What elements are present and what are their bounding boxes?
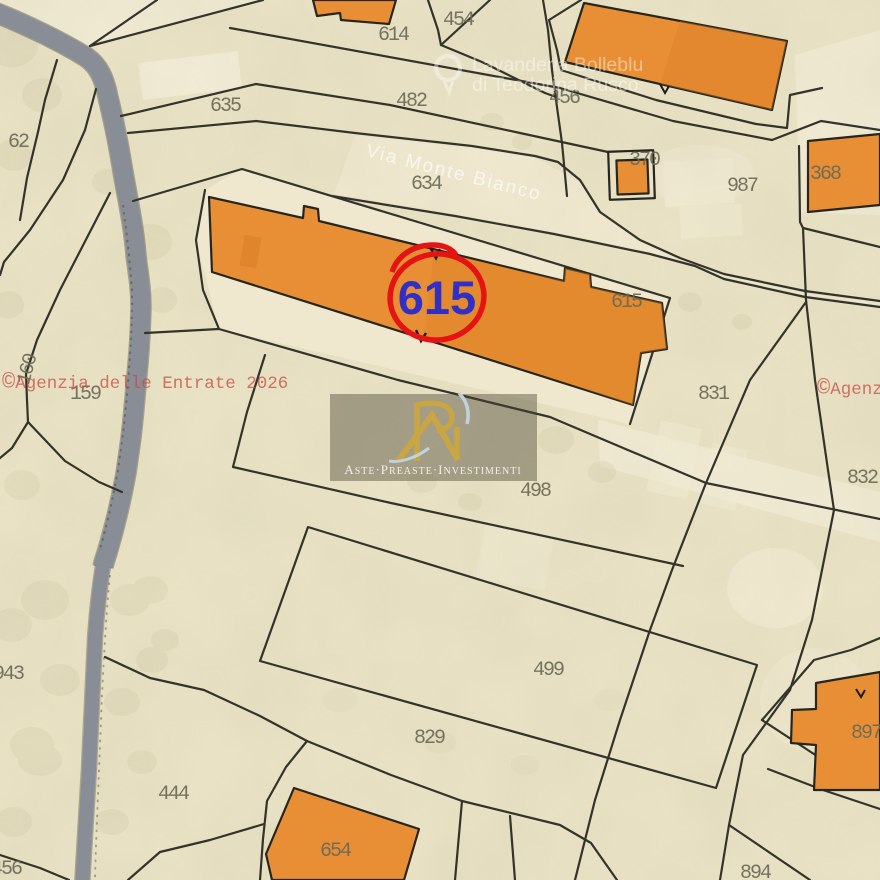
svg-text:614: 614: [378, 24, 409, 47]
svg-text:482: 482: [396, 90, 427, 113]
svg-text:943: 943: [0, 663, 24, 686]
svg-text:62: 62: [8, 131, 29, 154]
svg-text:444: 444: [158, 783, 189, 806]
svg-text:454: 454: [443, 9, 474, 32]
svg-text:368: 368: [810, 163, 841, 186]
svg-text:654: 654: [320, 840, 351, 863]
svg-text:894: 894: [740, 862, 771, 880]
svg-text:©Agenzia delle Entrate 2026: ©Agenzia delle Entrate 2026: [817, 376, 880, 401]
svg-text:897: 897: [851, 722, 880, 745]
svg-text:635: 635: [210, 95, 241, 118]
svg-text:829: 829: [414, 727, 445, 750]
svg-text:499: 499: [533, 659, 564, 682]
svg-text:615: 615: [611, 291, 642, 314]
svg-text:615: 615: [398, 271, 476, 324]
svg-text:©Agenzia delle Entrate 2026: ©Agenzia delle Entrate 2026: [2, 370, 288, 395]
svg-text:832: 832: [847, 467, 878, 490]
svg-text:370: 370: [629, 149, 660, 172]
svg-text:831: 831: [698, 383, 730, 406]
svg-text:Lavanderia Bolleblu: Lavanderia Bolleblu: [472, 54, 643, 76]
svg-text:987: 987: [727, 175, 758, 198]
svg-text:di Teodorina Rusco: di Teodorina Rusco: [472, 74, 639, 96]
svg-text:456: 456: [0, 858, 22, 880]
svg-text:498: 498: [520, 480, 551, 503]
